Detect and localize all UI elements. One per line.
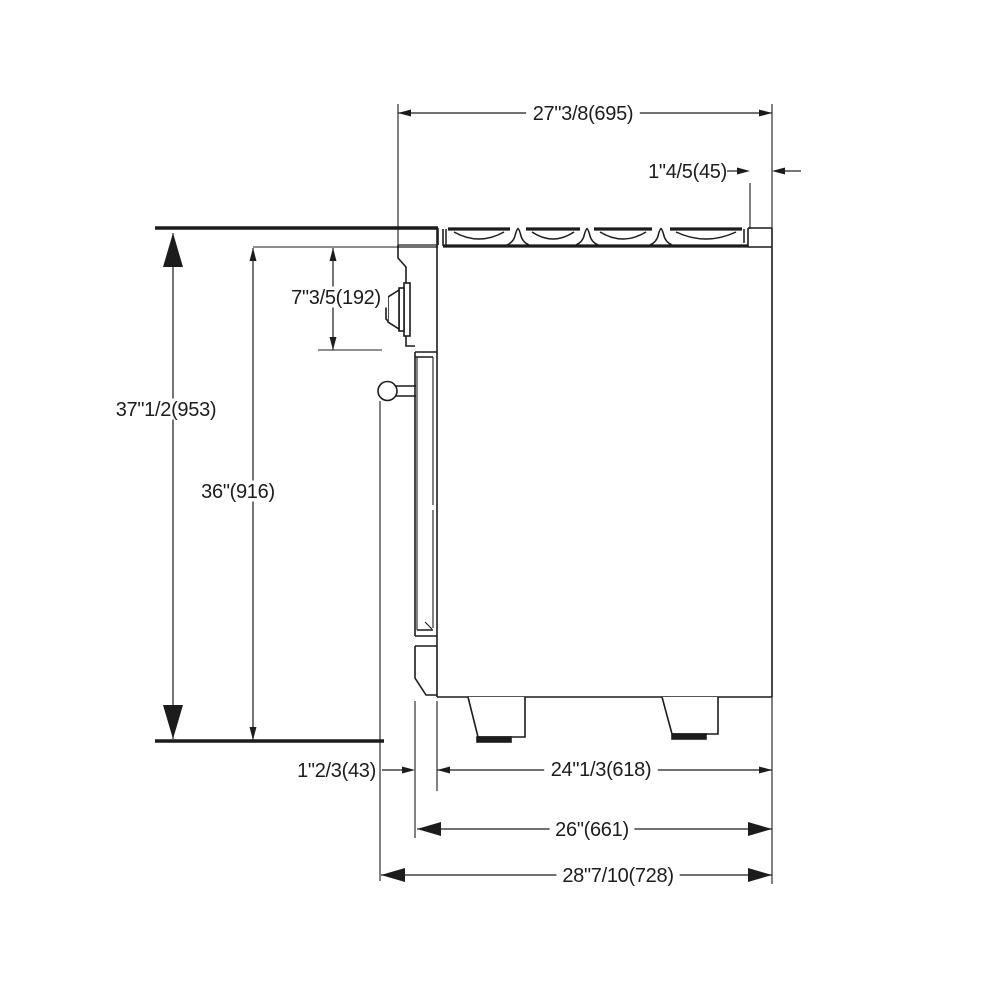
dim-label-countertop-height: 37"1/2(953): [116, 399, 217, 421]
range-dimension-drawing: 27"3/8(695)1"4/5(45)7"3/5(192)37"1/2(953…: [0, 0, 1000, 1000]
dimension-drawing-svg: 27"3/8(695)1"4/5(45)7"3/5(192)37"1/2(953…: [0, 0, 1000, 1000]
dim-arrowhead: [748, 822, 772, 836]
left-foot-pad: [477, 737, 511, 742]
dim-arrowhead: [330, 337, 337, 350]
dim-door-offset: 1"2/3(43): [282, 760, 415, 783]
dim-arrowhead: [759, 767, 772, 774]
burner-grate: [446, 229, 744, 246]
dim-arrowhead: [398, 110, 411, 117]
dim-total-depth: 28"7/10(728): [381, 865, 772, 888]
dim-label-total-depth: 28"7/10(728): [562, 865, 673, 887]
dim-arrowhead: [163, 705, 183, 739]
dim-arrowhead: [748, 868, 772, 882]
dim-cooktop-height: 36"(916): [196, 248, 281, 740]
right-leg: [662, 697, 718, 739]
dim-label-cooktop-height: 36"(916): [201, 481, 275, 503]
dim-rear-ledge-depth: 1"4/5(45): [633, 161, 801, 184]
dim-door-depth: 26"(661): [417, 819, 772, 842]
dim-control-panel-height: 7"3/5(192): [284, 248, 388, 350]
kick-panel: [415, 646, 437, 695]
dim-label-rear-ledge-depth: 1"4/5(45): [648, 161, 727, 183]
dim-arrowhead: [417, 822, 441, 836]
right-foot-pad: [672, 734, 706, 739]
rear-trim: [748, 228, 772, 247]
dim-label-door-offset: 1"2/3(43): [297, 760, 376, 782]
dim-arrowhead: [772, 168, 785, 175]
control-knob: [386, 283, 410, 336]
dim-arrowhead: [163, 233, 183, 267]
dim-label-control-panel-height: 7"3/5(192): [291, 287, 381, 309]
door-handle: [378, 382, 416, 401]
dim-arrowhead: [402, 767, 415, 774]
dim-arrowhead: [330, 248, 337, 261]
left-leg: [468, 697, 525, 742]
dim-label-cooktop-depth: 27"3/8(695): [533, 103, 634, 125]
dim-arrowhead: [250, 727, 257, 740]
dim-arrowhead: [250, 248, 257, 261]
dim-arrowhead: [437, 767, 450, 774]
dim-label-door-depth: 26"(661): [555, 819, 629, 841]
dim-body-depth: 24"1/3(618): [437, 759, 772, 782]
dim-arrowhead: [759, 110, 772, 117]
dim-arrowhead: [737, 168, 750, 175]
dim-arrowhead: [381, 868, 405, 882]
oven-door: [415, 352, 437, 636]
dimension-annotations: 27"3/8(695)1"4/5(45)7"3/5(192)37"1/2(953…: [109, 103, 801, 888]
dim-cooktop-depth: 27"3/8(695): [398, 103, 772, 126]
dim-label-body-depth: 24"1/3(618): [551, 759, 652, 781]
